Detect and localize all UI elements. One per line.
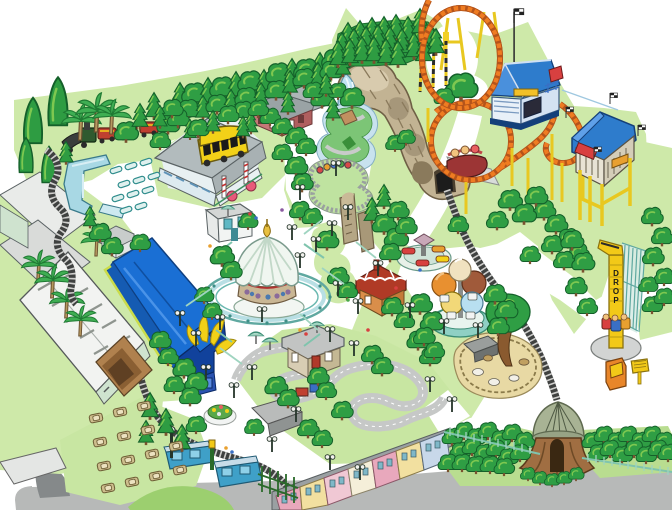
svg-text:R: R [613,278,619,287]
svg-text:O: O [613,287,619,296]
svg-text:D: D [613,269,619,278]
svg-text:P: P [613,296,619,305]
